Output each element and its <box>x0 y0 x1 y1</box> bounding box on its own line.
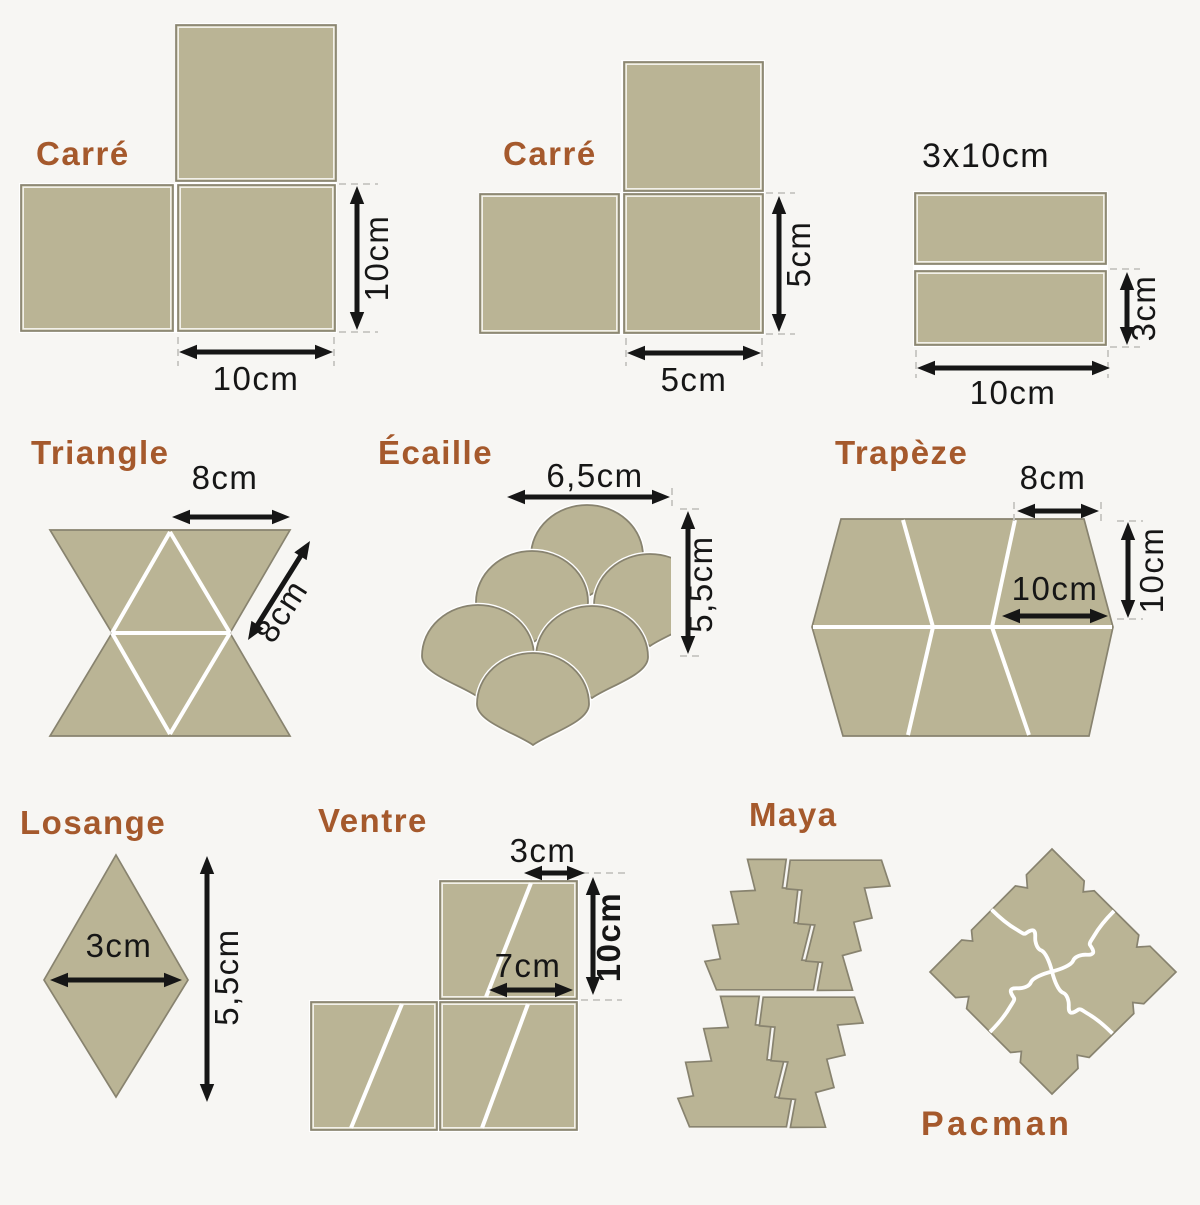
svg-text:10cm: 10cm <box>1012 570 1099 607</box>
svg-text:Maya: Maya <box>749 796 838 833</box>
svg-text:10cm: 10cm <box>1133 527 1170 614</box>
svg-text:6,5cm: 6,5cm <box>546 457 643 494</box>
svg-text:5,5cm: 5,5cm <box>682 535 719 632</box>
svg-text:Écaille: Écaille <box>378 434 493 471</box>
svg-text:Ventre: Ventre <box>318 802 428 839</box>
svg-text:10cm: 10cm <box>590 892 627 982</box>
svg-text:Trapèze: Trapèze <box>835 434 968 471</box>
svg-text:Carré: Carré <box>36 135 130 172</box>
svg-text:3cm: 3cm <box>510 832 577 869</box>
svg-text:3cm: 3cm <box>1125 275 1162 342</box>
svg-text:8cm: 8cm <box>1020 459 1087 496</box>
svg-text:10cm: 10cm <box>358 215 395 302</box>
svg-text:8cm: 8cm <box>192 459 259 496</box>
svg-text:3cm: 3cm <box>86 927 153 964</box>
svg-text:Pacman: Pacman <box>921 1105 1072 1143</box>
svg-text:5cm: 5cm <box>780 221 817 288</box>
svg-text:Losange: Losange <box>20 804 166 841</box>
svg-text:3x10cm: 3x10cm <box>922 137 1050 175</box>
svg-text:10cm: 10cm <box>970 374 1057 411</box>
svg-text:5,5cm: 5,5cm <box>208 928 245 1025</box>
svg-text:10cm: 10cm <box>213 360 300 397</box>
svg-text:Carré: Carré <box>503 135 597 172</box>
svg-text:5cm: 5cm <box>661 361 728 398</box>
svg-text:Triangle: Triangle <box>31 434 170 471</box>
svg-text:7cm: 7cm <box>495 947 562 984</box>
